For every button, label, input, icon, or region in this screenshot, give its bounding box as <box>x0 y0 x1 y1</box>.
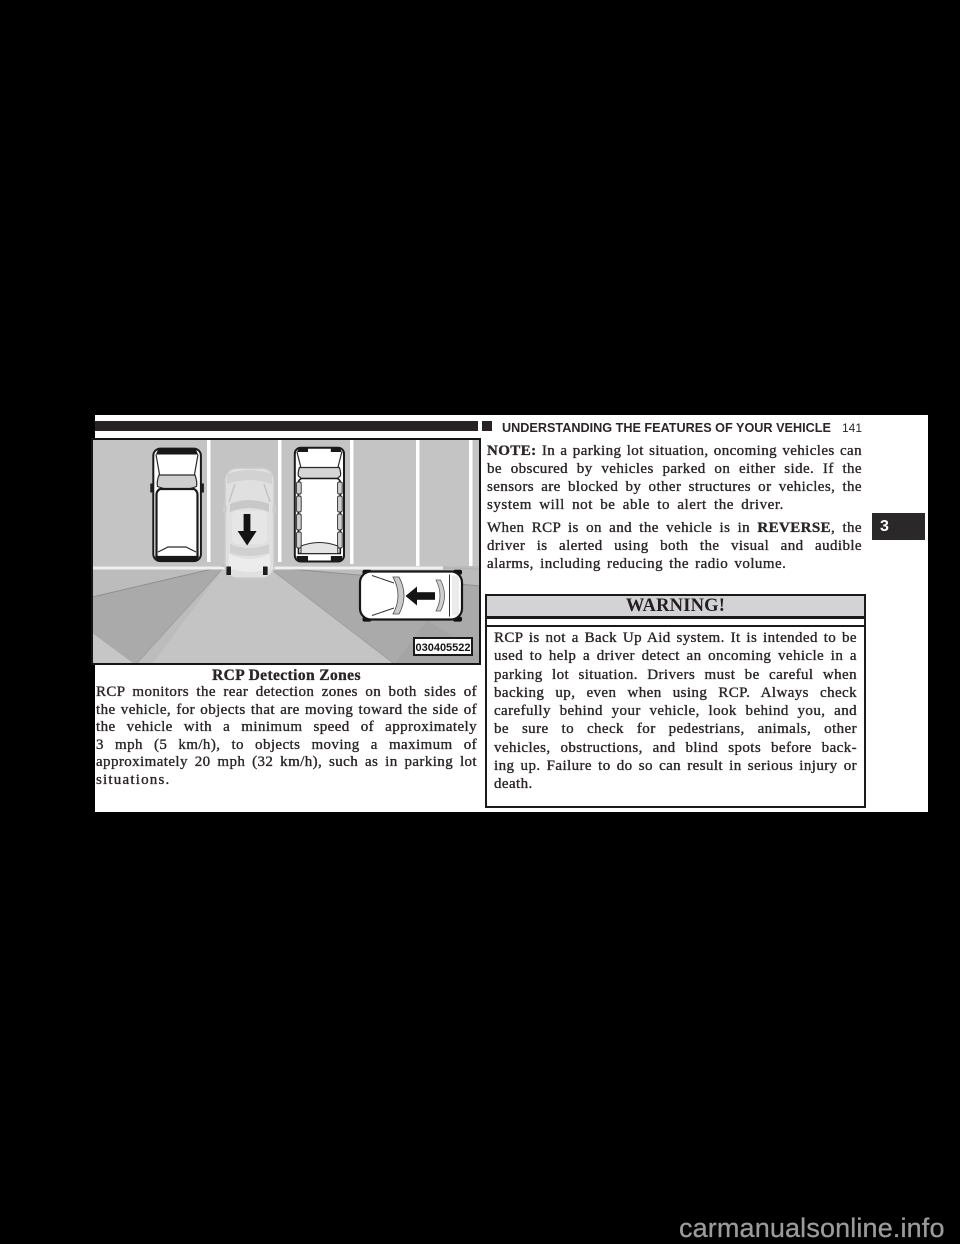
svg-text:030405522: 030405522 <box>415 642 470 654</box>
